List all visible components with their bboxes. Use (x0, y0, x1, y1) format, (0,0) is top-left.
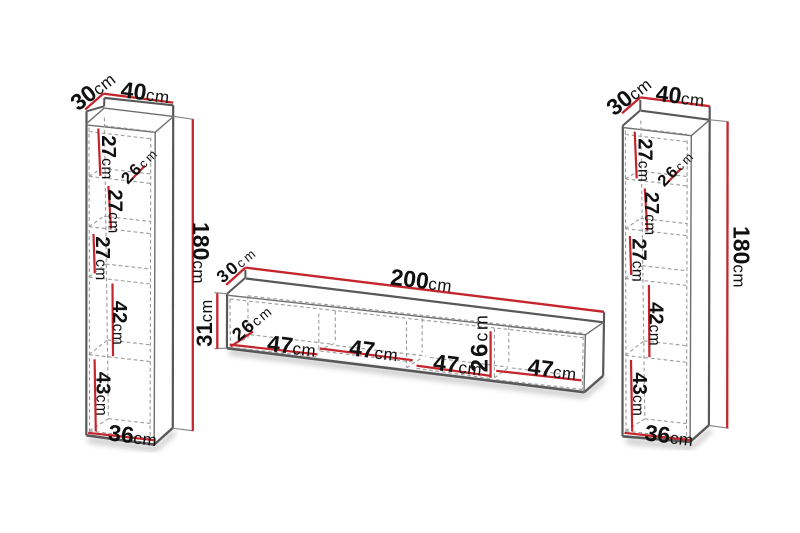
svg-text:27cm: 27cm (633, 138, 655, 182)
svg-text:27cm: 27cm (640, 192, 662, 236)
svg-text:26cm: 26cm (466, 313, 493, 373)
svg-text:43cm: 43cm (628, 372, 650, 416)
svg-text:27cm: 27cm (627, 238, 649, 282)
svg-text:42cm: 42cm (644, 302, 666, 346)
